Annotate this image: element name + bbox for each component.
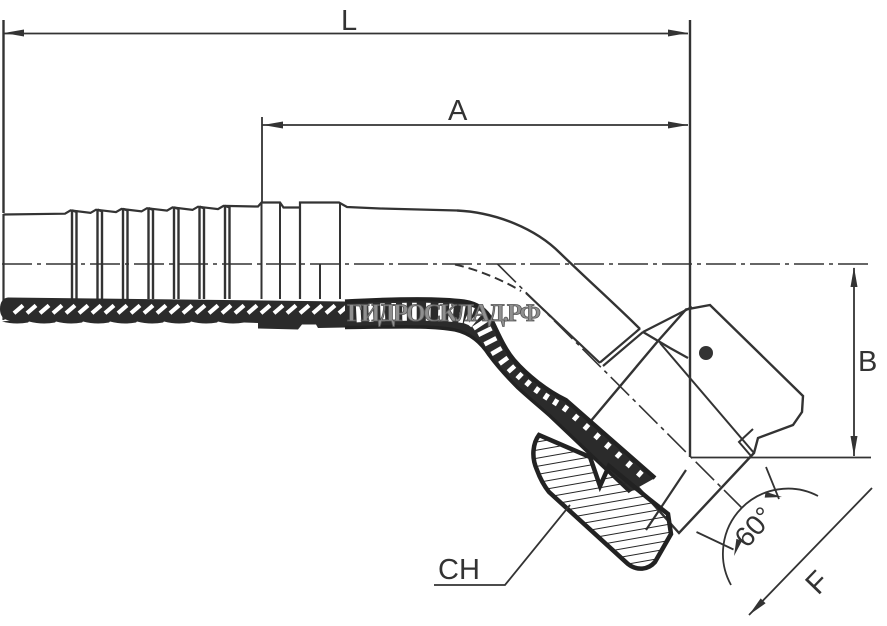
- svg-text:F: F: [799, 565, 835, 601]
- svg-text:ГИДРОСКЛАД.РФ: ГИДРОСКЛАД.РФ: [347, 300, 541, 327]
- svg-text:A: A: [448, 95, 468, 127]
- svg-text:CH: CH: [438, 554, 480, 586]
- svg-text:L: L: [341, 5, 357, 37]
- svg-text:B: B: [858, 346, 877, 378]
